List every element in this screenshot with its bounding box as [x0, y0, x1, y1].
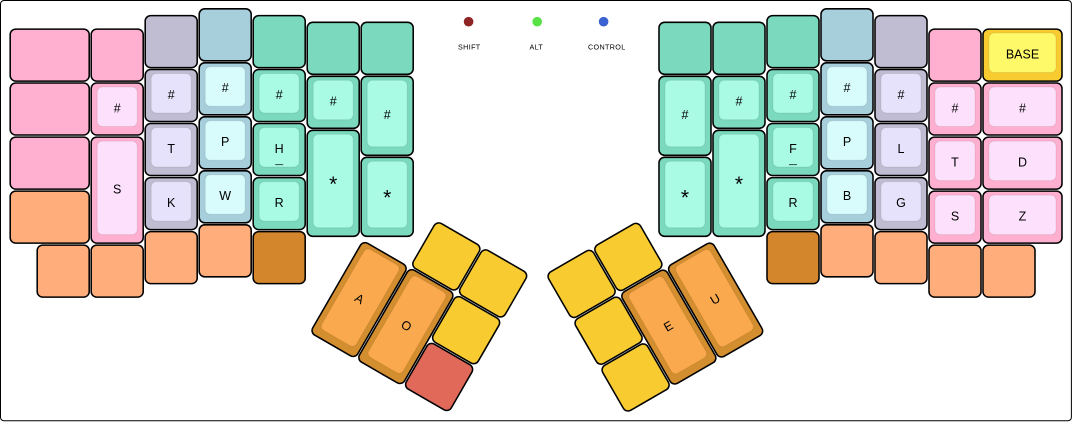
svg-text:S: S: [951, 209, 959, 223]
svg-text:#: #: [682, 108, 689, 122]
svg-text:*: *: [735, 173, 743, 196]
svg-text:H: H: [275, 142, 284, 156]
svg-text:B: B: [843, 189, 851, 203]
svg-text:ALT: ALT: [529, 43, 543, 52]
svg-text:W: W: [219, 189, 231, 203]
svg-text:SHIFT: SHIFT: [458, 43, 481, 52]
svg-text:R: R: [275, 196, 284, 210]
svg-text:S: S: [113, 182, 121, 196]
svg-text:D: D: [1018, 155, 1027, 169]
svg-text:#: #: [736, 95, 743, 109]
svg-text:*: *: [681, 187, 689, 210]
svg-text:#: #: [384, 108, 391, 122]
svg-text:*: *: [383, 187, 391, 210]
svg-text:F: F: [789, 142, 797, 156]
svg-text:#: #: [330, 95, 337, 109]
svg-text:#: #: [790, 88, 797, 102]
svg-text:K: K: [167, 196, 176, 210]
svg-text:T: T: [167, 142, 175, 156]
svg-text:#: #: [844, 81, 851, 95]
svg-text:BASE: BASE: [1006, 47, 1039, 61]
svg-text:P: P: [843, 135, 851, 149]
svg-text:*: *: [329, 173, 337, 196]
svg-text:CONTROL: CONTROL: [588, 43, 626, 52]
svg-text:#: #: [222, 81, 229, 95]
svg-text:#: #: [168, 88, 175, 102]
svg-text:#: #: [898, 88, 905, 102]
svg-text:R: R: [788, 196, 797, 210]
svg-text:#: #: [276, 88, 283, 102]
svg-text:L: L: [898, 142, 905, 156]
svg-text:#: #: [952, 101, 959, 115]
svg-text:Z: Z: [1019, 209, 1027, 223]
svg-text:P: P: [221, 135, 229, 149]
svg-text:#: #: [114, 101, 121, 115]
svg-text:#: #: [1019, 101, 1026, 115]
svg-text:G: G: [896, 196, 906, 210]
svg-text:T: T: [951, 155, 959, 169]
